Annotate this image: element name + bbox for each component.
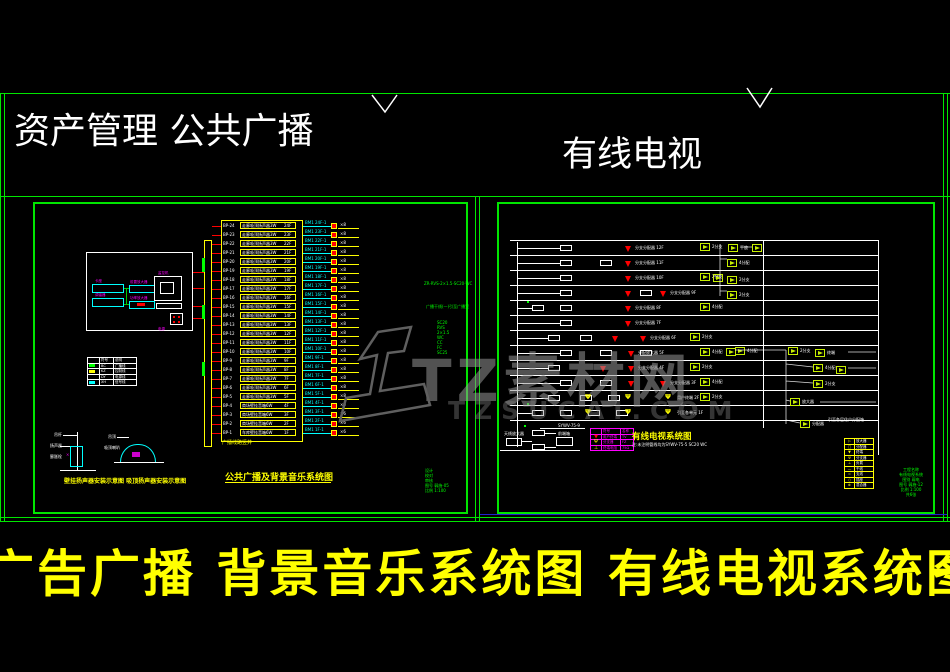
pa-row-name: 走廊吸顶扬声器3W [242, 394, 277, 399]
pa-row-qty: ×8 [340, 384, 346, 389]
pa-row-circuit: BM1 2F-1 [305, 418, 324, 423]
catv-junction-dot [527, 301, 529, 303]
pa-row-tail [338, 426, 359, 427]
cad-viewport: 资产管理 公共广播 有线电视 卡座 调谐器 前置放大器 功率放大器 监控机 电源… [0, 0, 950, 672]
pa-row-floor: 17F [284, 286, 291, 291]
pa-row-feed-wire [212, 379, 221, 380]
pa-row-qty: ×8 [340, 240, 346, 245]
pa-row-tag: BP-3 [223, 412, 232, 417]
pa-row-feed-wire [212, 415, 221, 416]
sheet-left-border-outer [0, 93, 1, 522]
pa-row-name: 商场壁挂音箱6W [242, 412, 273, 417]
pa-row-circuit: BM1 10F-1 [305, 346, 326, 351]
sheet-title-text: 广告广播 背景音乐系统图 有线电视系统图 [0, 534, 950, 606]
pa-row-feed-wire [212, 361, 221, 362]
catv-amplifier-icon [727, 291, 737, 299]
pa-row-feed-wire [212, 244, 221, 245]
pa-row-name: 商场壁挂音箱6W [242, 421, 273, 426]
pa-row-circuit: BM1 14F-1 [305, 310, 326, 315]
sheet-right-border-outer [947, 93, 948, 522]
pa-bus-tap [202, 362, 205, 376]
pa-patch-dot [173, 316, 175, 318]
pa-cassette-deck [92, 284, 124, 293]
pa-row-speaker [331, 268, 337, 274]
catv-headend-wire [522, 441, 532, 442]
pa-row-speaker [331, 259, 337, 265]
pa-row-circuit: BM1 19F-1 [305, 265, 326, 270]
catv-floor-line [510, 315, 878, 316]
pa-row-tail [338, 372, 359, 373]
catv-amp-label: 2分支 [800, 348, 811, 353]
pa-row-tail [338, 318, 359, 319]
catv-riser-label: 引至各层住户分配箱 [828, 417, 864, 422]
pa-row-wire [303, 343, 331, 344]
catv-tap-arrow-icon [625, 261, 631, 267]
pa-row-speaker [331, 295, 337, 301]
revision-check-icon [372, 95, 397, 112]
pa-row-wire [303, 253, 331, 254]
pa-row-tag: BP-11 [223, 340, 235, 345]
pa-row-tag: BP-8 [223, 367, 232, 372]
catv-title-info: 工程名称有线电视系统图别 弱电图号 弱施-12比例 1:100共6张 [887, 467, 935, 497]
catv-amp-label: 4分配 [712, 349, 723, 354]
sheet-right-border-inner [943, 93, 944, 522]
pa-row-qty: ×6 [340, 402, 346, 407]
catv-tap-arrow-icon [625, 291, 631, 297]
pa-row-feed-wire [212, 262, 221, 263]
pa-row-qty: ×8 [340, 222, 346, 227]
pa-row-wire [303, 433, 331, 434]
pa-row-tail [338, 336, 359, 337]
catv-floor-line [510, 270, 878, 271]
pa-row-floor: 1F [284, 430, 289, 435]
pa-row-speaker [331, 277, 337, 283]
pa-row-speaker [331, 403, 337, 409]
pa-row-qty: ×6 [340, 411, 346, 416]
pa-row-circuit: BM1 18F-1 [305, 274, 326, 279]
pa-row-circuit: BM1 22F-1 [305, 238, 326, 243]
catv-splitter-box [640, 290, 652, 296]
pa-row-tag: BP-18 [223, 277, 235, 282]
pa-row-feed-wire [212, 406, 221, 407]
catv-amplifier-icon [813, 364, 823, 372]
catv-legendy-symbol: ⊗ [845, 483, 855, 489]
pa-row-wire [303, 325, 331, 326]
pa-bus-bar [204, 240, 212, 447]
pa-row-wire [303, 334, 331, 335]
catv-legendy-desc: 混合器 [855, 483, 874, 489]
pa-row-name: 走廊吸顶扬声器3W [242, 223, 277, 228]
catv-floor-line [510, 240, 878, 241]
catv-floor-line [510, 285, 878, 286]
pa-row-name: 走廊吸顶扬声器3W [242, 349, 277, 354]
pa-row-name: 走廊吸顶扬声器3W [242, 385, 277, 390]
pa-row-circuit: BM1 4F-1 [305, 400, 324, 405]
pa-row-wire [303, 397, 331, 398]
pa-row-speaker [331, 421, 337, 427]
catv-amp-label: 2分支 [739, 277, 750, 282]
catv-amp-label: 终端 [827, 350, 835, 355]
catv-amp-label: 4分配 [712, 304, 723, 309]
pa-row-circuit: BM1 12F-1 [305, 328, 326, 333]
pa-row-name: 走廊吸顶扬声器3W [242, 313, 277, 318]
catv-amp-label: 4分配 [825, 365, 836, 370]
catv-legend-magenta-table: 符号 名称▼ 用户终端 TVΨ 分支器 FZ⊥ 终端电阻 75Ω [590, 428, 634, 451]
pa-label-power: 功率放大器 [130, 296, 148, 301]
pa-row-floor: 18F [284, 277, 291, 282]
pa-row-floor: 23F [284, 232, 291, 237]
pa-row-tag: BP-7 [223, 376, 232, 381]
pa-row-qty: ×8 [340, 249, 346, 254]
pa-row-speaker [331, 430, 337, 436]
pa-row-qty: ×6 [340, 429, 346, 434]
pa-row-floor: 3F [284, 412, 289, 417]
pa-row-name: 走廊吸顶扬声器3W [242, 376, 277, 381]
pa-power-amp-led [137, 303, 145, 306]
pa-row-wire [303, 262, 331, 263]
pa-row-floor: 12F [284, 331, 291, 336]
catv-tap-label: 分支分配器 7F [635, 320, 661, 325]
pa-info-line: 比例 1:100 [425, 488, 449, 493]
pa-row-feed-wire [212, 271, 221, 272]
catv-amp-label: 2分支 [739, 292, 750, 297]
pa-row-name: 走廊吸顶扬声器3W [242, 259, 277, 264]
pa-row-wire [303, 226, 331, 227]
pa-row-wire [303, 235, 331, 236]
catv-amplifier-icon [788, 347, 798, 355]
catv-splitter-box [560, 320, 572, 326]
pa-row-name: 走廊吸顶扬声器3W [242, 340, 277, 345]
pa-row-tag: BP-10 [223, 349, 235, 354]
pa-row-wire [303, 361, 331, 362]
pa-row-circuit: BM1 1F-1 [305, 427, 324, 432]
pa-row-tag: BP-22 [223, 241, 235, 246]
catv-tap-arrow-icon [625, 276, 631, 282]
pa-row-wire [303, 379, 331, 380]
pa-row-circuit: BM1 5F-1 [305, 391, 324, 396]
pa-row-qty: ×8 [340, 330, 346, 335]
pa-row-tag: BP-12 [223, 331, 235, 336]
pa-row-speaker [331, 241, 337, 247]
catv-splitter-box [560, 305, 572, 311]
pa-row-circuit: BM1 21F-1 [305, 247, 326, 252]
pa-patch-box [170, 313, 183, 325]
pa-row-feed-wire [212, 325, 221, 326]
pa-row-wire [303, 424, 331, 425]
pa-row-wire [303, 388, 331, 389]
pa-row-feed-wire [212, 370, 221, 371]
pa-row-floor: 9F [284, 358, 289, 363]
catv-mixer-a [532, 430, 545, 436]
catv-tap-arrow-icon [625, 306, 631, 312]
pa-row-feed-wire [212, 253, 221, 254]
catv-tap-label: 分支分配器 8F [635, 305, 661, 310]
pa-row-speaker [331, 358, 337, 364]
pa-row-speaker [331, 250, 337, 256]
catv-tap-label: 分支分配器 11F [635, 260, 664, 265]
pa-row-circuit: BM1 17F-1 [305, 283, 326, 288]
pa-row-name: 走廊吸顶扬声器3W [242, 331, 277, 336]
pa-row-tag: BP-1 [223, 430, 232, 435]
catv-amp-label: 4分配 [747, 348, 758, 353]
catv-amplifier-icon [700, 273, 710, 281]
catv-tap-arrow-icon [660, 291, 666, 297]
pa-feeder-note: 广播干线(一)引至广播室 [426, 304, 469, 309]
catv-splitter-box [532, 305, 544, 311]
pa-row-tag: BP-4 [223, 403, 232, 408]
catv-amplifier-icon [836, 366, 846, 374]
catv-floor-stub [518, 323, 560, 324]
catv-headend-wire [500, 450, 580, 451]
catv-tap-label: 分支分配器 12F [635, 245, 664, 250]
catv-amp-label: 2分支 [712, 244, 723, 249]
catv-amplifier-icon [752, 244, 762, 252]
pa-row-feed-wire [212, 307, 221, 308]
pa-wire-green [124, 304, 129, 305]
pa-monitor-screen [160, 282, 174, 294]
pa-sheet-title: 资产管理 公共广播 [14, 102, 313, 154]
catv-floor-line [510, 330, 878, 331]
pa-row-tail [338, 327, 359, 328]
pa-row-qty: ×8 [340, 348, 346, 353]
pa-row-speaker [331, 367, 337, 373]
pa-row-qty: ×8 [340, 258, 346, 263]
catv-junction-dot [524, 425, 526, 427]
catv-legendm-symbol: ⊥ [591, 445, 602, 451]
revision-check-icon [747, 88, 772, 107]
watermark-url: TZSUCAI.COM [448, 396, 741, 425]
frames-bottom-line2 [0, 521, 950, 522]
pa-row-feed-wire [212, 433, 221, 434]
pa-row-floor: 6F [284, 385, 289, 390]
pa-row-speaker [331, 376, 337, 382]
pa-tuner [92, 298, 124, 307]
pa-row-tail [338, 237, 359, 238]
detailB-label-speaker: 吸顶喇叭 [104, 445, 120, 450]
pa-row-tail [338, 264, 359, 265]
pa-row-tail [338, 408, 359, 409]
pa-row-tail [338, 354, 359, 355]
pa-row-wire [303, 415, 331, 416]
detailA-label-bolt: 膨胀栓 [50, 454, 62, 459]
catv-amplifier-icon [727, 259, 737, 267]
catv-info-line: 共6张 [887, 492, 935, 497]
catv-grid-right2 [878, 240, 879, 455]
pa-row-tag: BP-5 [223, 394, 232, 399]
pa-row-tag: BP-21 [223, 250, 235, 255]
catv-floor-stub [518, 248, 560, 249]
catv-amp-label: 干放 [740, 245, 748, 250]
catv-tap-label: 分支分配器 9F [670, 290, 696, 295]
pa-row-tail [338, 345, 359, 346]
detailB-ceiling [114, 462, 164, 463]
pa-row-name: 走廊吸顶扬声器3W [242, 367, 277, 372]
pa-row-circuit: BM1 6F-1 [305, 382, 324, 387]
pa-row-feed-wire [212, 343, 221, 344]
pa-row-tag: BP-24 [223, 223, 235, 228]
pa-row-floor: 5F [284, 394, 289, 399]
catv-splitter-box [600, 260, 612, 266]
pa-row-name: 车库壁挂音箱6W [242, 430, 273, 435]
catv-legend-yellow-table: ▷ 放大器□ 分配器▼ 终端Ψ 分支器⊥ 负载— 干线= 支线○ 插座⊗ 混合器 [844, 438, 874, 489]
pa-legend-symbol [88, 380, 100, 386]
catv-floor-stub [518, 308, 532, 309]
catv-headend-wire [545, 433, 556, 434]
pa-row-floor: 7F [284, 376, 289, 381]
pa-row-name: 走廊吸顶扬声器3W [242, 358, 277, 363]
pa-row-circuit: BM1 24F-1 [305, 220, 326, 225]
pa-row-tail [338, 273, 359, 274]
catv-amplifier-icon [700, 303, 710, 311]
pa-row-tail [338, 381, 359, 382]
pa-row-tag: BP-6 [223, 385, 232, 390]
pa-legend-code: XH [100, 380, 114, 386]
pa-row-tag: BP-9 [223, 358, 232, 363]
pa-cable-note: ZR-RVS-2×1.5-SC20-WC [424, 281, 472, 286]
pa-row-floor: 14F [284, 313, 291, 318]
detailA-speaker [70, 446, 83, 467]
catv-tap-label: 分支分配器 10F [635, 275, 664, 280]
catv-splitter-box [560, 290, 572, 296]
pa-caption-underline [225, 482, 331, 483]
detailA-label-rod: 吊杆 [54, 432, 62, 437]
pa-row-speaker [331, 304, 337, 310]
pa-row-floor: 4F [284, 403, 289, 408]
pa-row-qty: ×6 [340, 420, 346, 425]
detailB-leader [117, 437, 129, 438]
detailA-fixing: × [66, 452, 69, 457]
pa-row-qty: ×8 [340, 285, 346, 290]
pa-row-speaker [331, 349, 337, 355]
pa-row-speaker [331, 322, 337, 328]
catv-antenna-amp [506, 438, 522, 446]
catv-cable-leader [540, 428, 585, 429]
pa-row-feed-wire [212, 334, 221, 335]
pa-row-wire [303, 352, 331, 353]
catv-floor-line [510, 255, 878, 256]
catv-amplifier-icon [815, 349, 825, 357]
catv-headend-label1: 天线放大器 [504, 431, 524, 436]
pa-row-feed-wire [212, 388, 221, 389]
pa-row-tag: BP-20 [223, 259, 235, 264]
pa-bus-tap [202, 258, 205, 272]
pa-row-circuit: BM1 13F-1 [305, 319, 326, 324]
pa-label-monitor: 监控机 [158, 271, 169, 276]
catv-amplifier-icon [700, 348, 710, 356]
pa-row-wire [303, 406, 331, 407]
catv-amplifier-icon [700, 243, 710, 251]
pa-row-speaker [331, 412, 337, 418]
catv-amplifier-icon [735, 347, 745, 355]
pa-row-tail [338, 363, 359, 364]
pa-row-qty: ×8 [340, 357, 346, 362]
pa-row-tail [338, 291, 359, 292]
pa-row-tail [338, 246, 359, 247]
pa-row-wire [303, 370, 331, 371]
pa-row-floor: 13F [284, 322, 291, 327]
pa-row-name: 走廊吸顶扬声器3W [242, 277, 277, 282]
pa-row-circuit: BM1 9F-1 [305, 355, 324, 360]
pa-row-tail [338, 282, 359, 283]
sheet-left-border-inner [4, 93, 5, 522]
catv-grid-right1 [763, 240, 764, 428]
pa-row-floor: 16F [284, 295, 291, 300]
sheet-top-border [0, 93, 950, 94]
pa-row-name: 走廊吸顶扬声器3W [242, 304, 277, 309]
pa-row-circuit: BM1 11F-1 [305, 337, 326, 342]
pa-row-qty: ×8 [340, 294, 346, 299]
pa-row-qty: ×8 [340, 393, 346, 398]
pa-row-name: 商场壁挂音箱6W [242, 403, 273, 408]
catv-floor-stub [518, 293, 560, 294]
catv-headend-label3: 前端箱 [558, 431, 570, 436]
pa-row-wire [303, 298, 331, 299]
pa-row-feed-wire [212, 280, 221, 281]
pa-row-name: 走廊吸顶扬声器3W [242, 322, 277, 327]
catv-note: 注:未注明管线均为SYWV-75-5 SC20 WC [632, 442, 707, 447]
pa-row-circuit: BM1 15F-1 [305, 301, 326, 306]
pa-row-speaker [331, 331, 337, 337]
pa-row-name: 走廊吸顶扬声器3W [242, 268, 277, 273]
pa-row-tail [338, 228, 359, 229]
pa-shaft-label: 广播线路竖井 [222, 440, 252, 446]
pa-row-name: 走廊吸顶扬声器3W [242, 241, 277, 246]
pa-row-tag: BP-13 [223, 322, 235, 327]
pa-bus-tap [202, 305, 205, 319]
pa-row-wire [303, 316, 331, 317]
catv-legendm-name: 终端电阻 [602, 445, 621, 451]
pa-row-tag: BP-23 [223, 232, 235, 237]
pa-row-tag: BP-16 [223, 295, 235, 300]
pa-row-speaker [331, 340, 337, 346]
pa-row-tail [338, 417, 359, 418]
pa-row-tail [338, 300, 359, 301]
catv-amplifier-icon [790, 398, 800, 406]
catv-amplifier-icon [800, 420, 810, 428]
pa-row-qty: ×8 [340, 375, 346, 380]
pa-legend-desc: 信号线 [114, 380, 137, 386]
pa-row-tail [338, 435, 359, 436]
pa-row-qty: ×8 [340, 231, 346, 236]
pa-row-feed-wire [212, 397, 221, 398]
pa-patch-dot [178, 316, 180, 318]
pa-row-tail [338, 399, 359, 400]
pa-row-feed-wire [212, 235, 221, 236]
pa-row-speaker [331, 232, 337, 238]
pa-row-floor: 19F [284, 268, 291, 273]
catv-amplifier-icon [700, 378, 710, 386]
catv-caption: 有线电视系统图 [632, 430, 692, 442]
pa-row-circuit: BM1 8F-1 [305, 364, 324, 369]
pa-wire-green [126, 288, 127, 304]
catv-amp-label: 4分配 [739, 260, 750, 265]
pa-row-circuit: BM1 20F-1 [305, 256, 326, 261]
pa-row-name: 走廊吸顶扬声器3W [242, 250, 277, 255]
pa-row-name: 走廊吸顶扬声器3W [242, 295, 277, 300]
pa-row-qty: ×8 [340, 267, 346, 272]
pa-row-floor: 15F [284, 304, 291, 309]
pa-row-tag: BP-2 [223, 421, 232, 426]
catv-amplifier-icon [727, 276, 737, 284]
pa-row-floor: 8F [284, 367, 289, 372]
pa-row-feed-wire [212, 424, 221, 425]
pa-row-qty: ×8 [340, 312, 346, 317]
catv-floor-line [510, 300, 878, 301]
catv-amp-label: 2分支 [702, 334, 713, 339]
pa-row-tag: BP-15 [223, 304, 235, 309]
pa-row-tag: BP-14 [223, 313, 235, 318]
pa-row-tag: BP-17 [223, 286, 235, 291]
